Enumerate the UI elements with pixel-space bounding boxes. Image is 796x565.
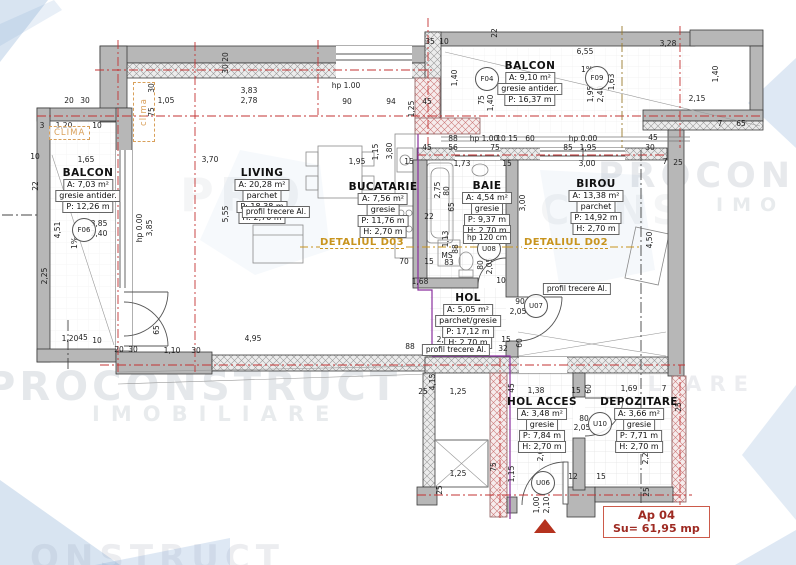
baie-parapet-note: hp 120 cm (463, 232, 511, 244)
profil-trecere-note-3: profil trecere Al. (422, 344, 490, 356)
room-area: A: 5,05 m² (443, 304, 493, 316)
room-label-birou: BIROU A: 13,38 m² parchet P: 14,92 m H: … (568, 178, 623, 235)
room-name: BALCON (55, 167, 120, 179)
opening-tag-u07: U07 (524, 294, 548, 318)
floor-plan-canvas: PROCONSTRUCTIMOBILIAREPROCONSIMOLIAREONS… (0, 0, 796, 565)
room-perimeter: P: 14,92 m (570, 212, 621, 224)
room-name: HOL ACCES (507, 396, 577, 408)
room-name: BUCATARIE (349, 181, 418, 193)
profil-trecere-note-1: profil trecere Al. (242, 206, 310, 218)
clima-unit-label: CLIMA (49, 126, 90, 140)
detail-callout-d02: DETALIUL D02 (524, 237, 608, 249)
room-finish: gresie antider. (55, 190, 120, 202)
room-perimeter: P: 16,37 m (504, 94, 555, 106)
room-perimeter: P: 11,76 m (357, 215, 408, 227)
room-label-baie: BAIE A: 4,54 m² gresie P: 9,37 m H: 2,70… (462, 180, 512, 237)
room-label-balcon-top: BALCON A: 9,10 m² gresie antider. P: 16,… (497, 60, 562, 106)
room-name: HOL (435, 292, 501, 304)
room-label-hol: HOL A: 5,05 m² parchet/gresie P: 17,12 m… (435, 292, 501, 349)
opening-tags-layer: F04F09F06U08U07U10U06 (0, 0, 796, 565)
room-finish: gresie (471, 203, 503, 215)
room-perimeter: P: 7,71 m (616, 430, 662, 442)
room-area: A: 13,38 m² (568, 190, 623, 202)
room-perimeter: P: 9,37 m (464, 214, 510, 226)
room-label-bucatarie: BUCATARIE A: 7,56 m² gresie P: 11,76 m H… (349, 181, 418, 238)
room-area: A: 7,03 m² (63, 179, 113, 191)
room-name: BAIE (462, 180, 512, 192)
room-area: A: 9,10 m² (505, 72, 555, 84)
room-area: A: 7,56 m² (358, 193, 408, 205)
clima-niche-label: clima (139, 98, 149, 126)
room-area: A: 3,66 m² (614, 408, 664, 420)
room-finish: gresie (526, 419, 558, 431)
room-finish: parchet (577, 201, 616, 213)
room-perimeter: P: 7,84 m (519, 430, 565, 442)
opening-tag-f06: F06 (72, 218, 96, 242)
apartment-number: Ap 04 (613, 509, 700, 522)
room-label-hol-acces: HOL ACCES A: 3,48 m² gresie P: 7,84 m H:… (507, 396, 577, 453)
room-height: H: 2,70 m (615, 441, 662, 453)
room-perimeter: P: 17,12 m (442, 326, 493, 338)
room-height: H: 2,70 m (518, 441, 565, 453)
opening-tag-f09: F09 (585, 66, 609, 90)
room-perimeter: P: 12,26 m (62, 201, 113, 213)
room-height: H: 2,70 m (572, 223, 619, 235)
room-name: DEPOZITARE (600, 396, 678, 408)
room-area: A: 3,48 m² (517, 408, 567, 420)
room-name: LIVING (234, 167, 289, 179)
room-finish: gresie antider. (497, 83, 562, 95)
room-label-depozitare: DEPOZITARE A: 3,66 m² gresie P: 7,71 m H… (600, 396, 678, 453)
opening-tag-f04: F04 (475, 67, 499, 91)
apartment-surface: Su= 61,95 mp (613, 522, 700, 535)
room-finish: parchet (243, 190, 282, 202)
apartment-info-box: Ap 04 Su= 61,95 mp (603, 506, 710, 538)
room-name: BIROU (568, 178, 623, 190)
room-area: A: 20,28 m² (234, 179, 289, 191)
room-area: A: 4,54 m² (462, 192, 512, 204)
room-finish: gresie (367, 204, 399, 216)
room-finish: parchet/gresie (435, 315, 501, 327)
room-finish: gresie (623, 419, 655, 431)
entrance-triangle-icon (534, 519, 556, 533)
profil-trecere-note-2: profil trecere Al. (543, 283, 611, 295)
detail-callout-d03: DETALIUL D03 (320, 237, 404, 249)
room-label-balcon-left: BALCON A: 7,03 m² gresie antider. P: 12,… (55, 167, 120, 213)
opening-tag-u06: U06 (531, 471, 555, 495)
clima-niche: clima (133, 82, 155, 142)
room-name: BALCON (497, 60, 562, 72)
